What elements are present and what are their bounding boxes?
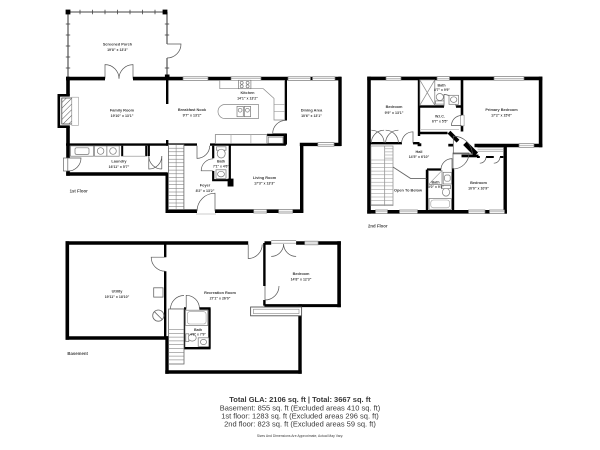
- svg-text:Bedroom: Bedroom: [470, 181, 487, 185]
- svg-text:7'1" x 4'6": 7'1" x 4'6": [213, 164, 229, 168]
- svg-text:W.I.C.: W.I.C.: [435, 115, 445, 119]
- svg-text:14'8" x 12'3": 14'8" x 12'3": [291, 278, 312, 282]
- svg-text:Living Room: Living Room: [253, 176, 277, 180]
- svg-text:9'9" x 13'1": 9'9" x 13'1": [385, 111, 404, 115]
- svg-text:17'2" x 15'6": 17'2" x 15'6": [491, 114, 512, 118]
- svg-text:Bedroom: Bedroom: [293, 272, 310, 276]
- svg-text:Dining Area: Dining Area: [301, 109, 323, 113]
- svg-text:14'5" x 6'10": 14'5" x 6'10": [409, 155, 430, 159]
- svg-text:5'0" x 9'3": 5'0" x 9'3": [428, 185, 444, 189]
- svg-text:Foyer: Foyer: [200, 184, 211, 188]
- svg-text:2nd Floor: 2nd Floor: [368, 224, 388, 229]
- svg-text:Screened Porch: Screened Porch: [103, 43, 133, 47]
- svg-text:Hall: Hall: [416, 150, 423, 154]
- svg-text:8'7" x 9'9": 8'7" x 9'9": [434, 88, 450, 92]
- svg-text:Primary Bedroom: Primary Bedroom: [485, 108, 518, 112]
- svg-text:Open To Below: Open To Below: [394, 188, 423, 193]
- svg-text:Bath: Bath: [437, 83, 445, 87]
- svg-text:2nd floor: 823 sq. ft (Exclude: 2nd floor: 823 sq. ft (Excluded areas 59…: [224, 420, 376, 429]
- svg-text:16'11" x 5'7": 16'11" x 5'7": [109, 165, 130, 169]
- svg-text:Breakfast Nook: Breakfast Nook: [178, 108, 207, 112]
- svg-text:Laundry: Laundry: [111, 160, 127, 164]
- svg-text:6'7" x 5'5": 6'7" x 5'5": [432, 119, 448, 123]
- svg-text:Utility: Utility: [112, 290, 124, 294]
- svg-text:Basement: Basement: [67, 351, 88, 356]
- svg-text:Bath: Bath: [194, 328, 202, 332]
- svg-text:19'10" x 13'1": 19'10" x 13'1": [111, 114, 134, 118]
- svg-text:4'9" x 7'9": 4'9" x 7'9": [190, 333, 206, 337]
- svg-text:Family Room: Family Room: [110, 109, 135, 113]
- svg-text:17'3" x 13'3": 17'3" x 13'3": [254, 182, 275, 186]
- svg-text:27'1" x 26'0": 27'1" x 26'0": [210, 297, 231, 301]
- svg-text:Bedroom: Bedroom: [386, 105, 403, 109]
- svg-text:19'11" x 18'10": 19'11" x 18'10": [105, 295, 130, 299]
- svg-text:8'2" x 13'2": 8'2" x 13'2": [196, 189, 215, 193]
- svg-text:Bath: Bath: [217, 160, 225, 164]
- svg-text:Bath: Bath: [431, 180, 439, 184]
- svg-text:Kitchen: Kitchen: [240, 91, 255, 95]
- svg-text:Sizes And Dimensions Are Appro: Sizes And Dimensions Are Approximate, Ac…: [257, 434, 343, 438]
- svg-text:14'1" x 13'2": 14'1" x 13'2": [237, 97, 258, 101]
- svg-text:10'0" x 10'9": 10'0" x 10'9": [468, 187, 489, 191]
- svg-text:1st Floor: 1st Floor: [70, 188, 88, 193]
- svg-text:9'7" x 13'2": 9'7" x 13'2": [183, 114, 202, 118]
- svg-text:19'8" x 13'3": 19'8" x 13'3": [107, 48, 128, 52]
- svg-text:10'6" x 13'1": 10'6" x 13'1": [301, 114, 322, 118]
- svg-text:Recreation Room: Recreation Room: [204, 291, 236, 295]
